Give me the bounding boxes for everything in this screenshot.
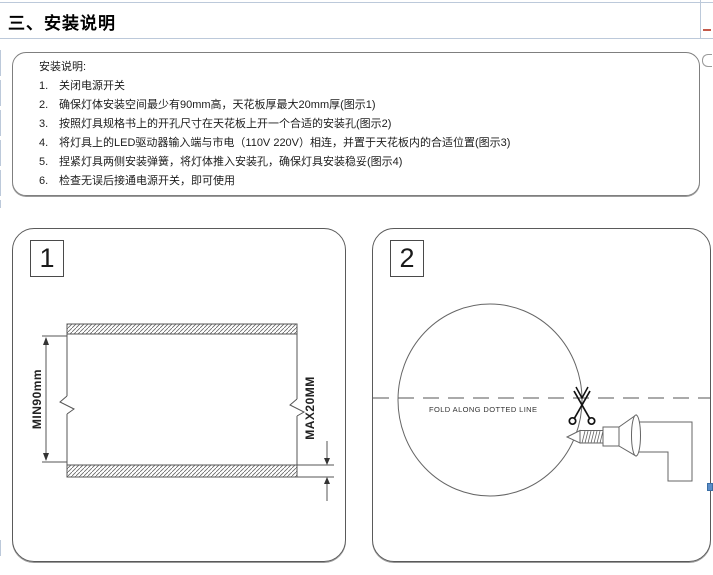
- document-page: 三、安装说明 安装说明: 1. 关闭电源开关 2. 确保灯体安装空间最少有90m…: [0, 0, 713, 575]
- min-height-label: MIN90mm: [30, 364, 44, 434]
- grid-tick-left: [0, 540, 1, 556]
- instruction-item: 4. 将灯具上的LED驱动器输入端与市电（110V 220V）相连，并置于天花板…: [39, 134, 689, 153]
- figure1-panel: [12, 228, 346, 562]
- item-text: 确保灯体安装空间最少有90mm高，天花板厚最大20mm厚(图示1): [59, 96, 376, 115]
- instruction-item: 3. 按照灯具规格书上的开孔尺寸在天花板上开一个合适的安装孔(图示2): [39, 115, 689, 134]
- clipped-edge-artifact: [702, 54, 712, 67]
- grid-tick-left: [0, 80, 1, 106]
- figure1-number: 1: [39, 243, 54, 274]
- figure2-panel: [372, 228, 711, 562]
- instructions-heading: 安装说明:: [39, 58, 689, 77]
- figure1-number-box: 1: [30, 240, 64, 277]
- item-number: 6.: [39, 172, 59, 191]
- grid-tick-left: [0, 140, 1, 166]
- instruction-item: 5. 捏紧灯具两侧安装弹簧，将灯体推入安装孔，确保灯具安装稳妥(图示4): [39, 153, 689, 172]
- grid-line-right: [700, 0, 701, 38]
- item-text: 检查无误后接通电源开关，即可使用: [59, 172, 235, 191]
- grid-tick-left: [0, 110, 1, 136]
- page-title: 三、安装说明: [8, 9, 116, 34]
- item-text: 将灯具上的LED驱动器输入端与市电（110V 220V）相连，并置于天花板内的合…: [59, 134, 510, 153]
- grid-tick-left: [0, 170, 1, 196]
- item-number: 1.: [39, 77, 59, 96]
- grid-tick-left: [0, 200, 1, 208]
- instruction-item: 6. 检查无误后接通电源开关，即可使用: [39, 172, 689, 191]
- item-number: 4.: [39, 134, 59, 153]
- item-text: 捏紧灯具两侧安装弹簧，将灯体推入安装孔，确保灯具安装稳妥(图示4): [59, 153, 402, 172]
- figure2-number: 2: [399, 243, 414, 274]
- item-text: 关闭电源开关: [59, 77, 125, 96]
- item-number: 2.: [39, 96, 59, 115]
- item-text: 按照灯具规格书上的开孔尺寸在天花板上开一个合适的安装孔(图示2): [59, 115, 391, 134]
- selection-handle[interactable]: [707, 483, 713, 491]
- instructions-box: 安装说明: 1. 关闭电源开关 2. 确保灯体安装空间最少有90mm高，天花板厚…: [12, 52, 700, 196]
- max-thickness-label: MAX20MM: [303, 373, 317, 443]
- grid-tick-left: [0, 50, 1, 76]
- grid-line-top: [0, 2, 713, 3]
- item-number: 5.: [39, 153, 59, 172]
- figure2-number-box: 2: [390, 240, 424, 277]
- instruction-item: 1. 关闭电源开关: [39, 77, 689, 96]
- comment-marker: [703, 29, 711, 31]
- instruction-item: 2. 确保灯体安装空间最少有90mm高，天花板厚最大20mm厚(图示1): [39, 96, 689, 115]
- title-underline: [0, 38, 713, 39]
- item-number: 3.: [39, 115, 59, 134]
- fold-line-label: FOLD ALONG DOTTED LINE: [429, 405, 549, 414]
